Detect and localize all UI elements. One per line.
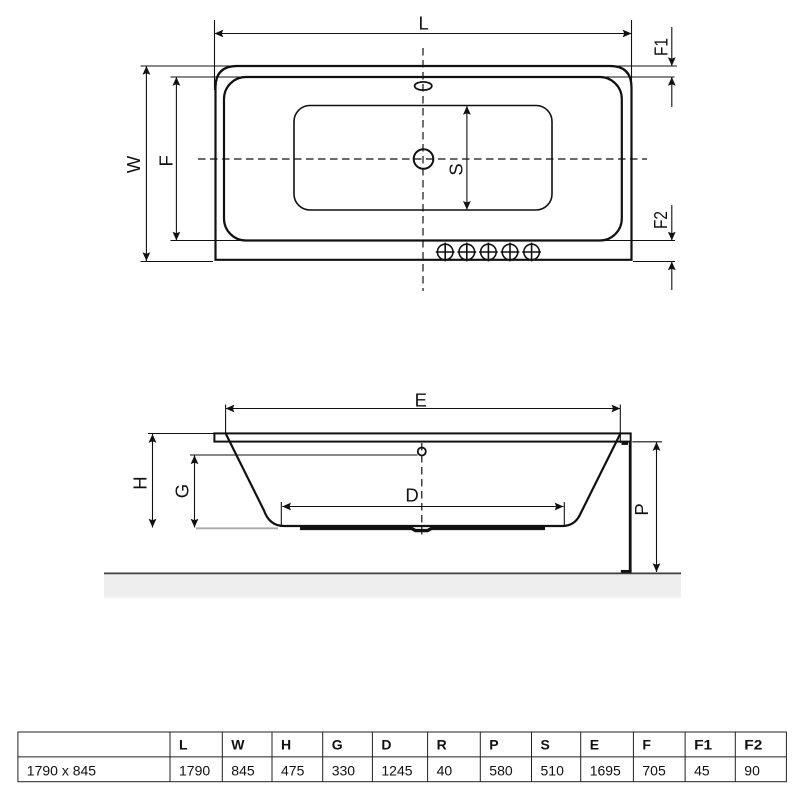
svg-text:S: S bbox=[541, 736, 550, 752]
svg-text:845: 845 bbox=[231, 762, 255, 778]
svg-text:W: W bbox=[231, 736, 245, 752]
svg-text:H: H bbox=[281, 736, 291, 752]
svg-text:P: P bbox=[631, 503, 652, 515]
svg-text:P: P bbox=[489, 736, 498, 752]
svg-text:L: L bbox=[179, 736, 188, 752]
svg-text:S: S bbox=[445, 163, 466, 175]
svg-text:475: 475 bbox=[281, 762, 305, 778]
svg-text:E: E bbox=[590, 736, 599, 752]
svg-text:E: E bbox=[415, 390, 427, 411]
svg-text:F1: F1 bbox=[694, 736, 712, 752]
svg-text:F: F bbox=[156, 155, 177, 166]
svg-text:F: F bbox=[642, 736, 651, 752]
svg-text:510: 510 bbox=[541, 762, 565, 778]
svg-text:F2: F2 bbox=[650, 211, 671, 229]
svg-text:G: G bbox=[171, 484, 192, 498]
svg-text:1790: 1790 bbox=[179, 762, 210, 778]
svg-text:1695: 1695 bbox=[590, 762, 621, 778]
svg-text:G: G bbox=[332, 736, 343, 752]
svg-text:F1: F1 bbox=[651, 38, 672, 56]
svg-text:705: 705 bbox=[642, 762, 666, 778]
svg-text:330: 330 bbox=[332, 762, 356, 778]
svg-text:1245: 1245 bbox=[381, 762, 412, 778]
svg-text:R: R bbox=[437, 736, 447, 752]
svg-text:D: D bbox=[405, 485, 418, 506]
svg-text:45: 45 bbox=[694, 762, 710, 778]
svg-text:F2: F2 bbox=[744, 736, 762, 752]
svg-text:D: D bbox=[381, 736, 391, 752]
svg-text:H: H bbox=[130, 476, 151, 489]
svg-text:90: 90 bbox=[744, 762, 760, 778]
svg-text:580: 580 bbox=[489, 762, 513, 778]
svg-text:W: W bbox=[123, 155, 144, 173]
svg-text:1790 x 845: 1790 x 845 bbox=[27, 762, 96, 778]
svg-text:L: L bbox=[418, 13, 428, 34]
svg-text:40: 40 bbox=[437, 762, 453, 778]
